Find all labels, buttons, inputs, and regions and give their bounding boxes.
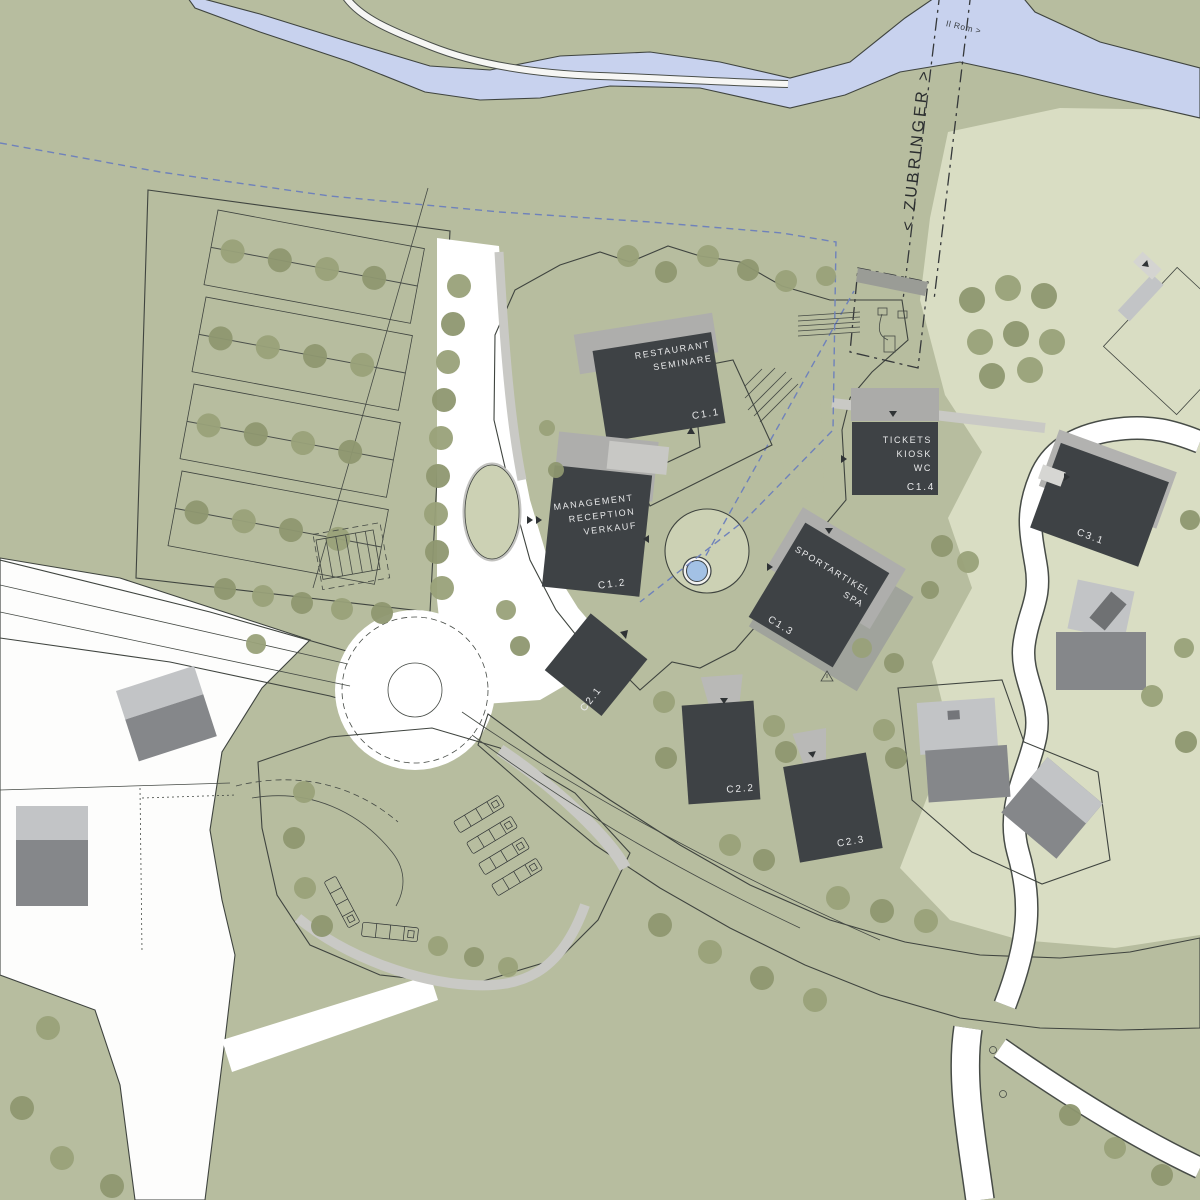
svg-text:KIOSK: KIOSK (896, 449, 932, 459)
tree (1175, 731, 1197, 753)
tree (331, 598, 353, 620)
tree (816, 266, 836, 286)
tree (737, 259, 759, 281)
tree (1003, 321, 1029, 347)
farm-house (16, 806, 88, 906)
tree (283, 827, 305, 849)
tree (653, 691, 675, 713)
tree (436, 350, 460, 374)
svg-text:C1.4: C1.4 (907, 482, 935, 493)
tree (995, 275, 1021, 301)
tree (655, 747, 677, 769)
tree (1031, 283, 1057, 309)
tree (1017, 357, 1043, 383)
tree (967, 329, 993, 355)
tree (293, 781, 315, 803)
tree (214, 578, 236, 600)
tree (979, 363, 1005, 389)
tree (548, 462, 564, 478)
tree (294, 877, 316, 899)
tree (959, 287, 985, 313)
tree (775, 270, 797, 292)
tree (775, 741, 797, 763)
tree (873, 719, 895, 741)
tree (697, 245, 719, 267)
tree (430, 576, 454, 600)
tree (870, 899, 894, 923)
tree (498, 957, 518, 977)
tree (921, 581, 939, 599)
tree (1151, 1164, 1173, 1186)
tree (1174, 638, 1194, 658)
tree (10, 1096, 34, 1120)
tree (464, 947, 484, 967)
tree (100, 1174, 124, 1198)
tree (931, 535, 953, 557)
svg-text:WC: WC (914, 463, 932, 473)
site-plan: < ZUBRINGER > Il Rom > RESTAURANT SEMINA… (0, 0, 1200, 1200)
tree (1141, 685, 1163, 707)
tree (428, 936, 448, 956)
svg-text:TICKETS: TICKETS (883, 435, 932, 445)
tree (698, 940, 722, 964)
tree (617, 245, 639, 267)
tree (424, 502, 448, 526)
tree (539, 420, 555, 436)
tree (441, 312, 465, 336)
tree (957, 551, 979, 573)
tree (648, 913, 672, 937)
svg-text:C2.2: C2.2 (726, 783, 755, 796)
tree (252, 585, 274, 607)
tree (496, 600, 516, 620)
tree (655, 261, 677, 283)
tree (852, 638, 872, 658)
tree (50, 1146, 74, 1170)
tree (311, 915, 333, 937)
tree (36, 1016, 60, 1040)
tree (914, 909, 938, 933)
tree (719, 834, 741, 856)
tree (425, 540, 449, 564)
tree (803, 988, 827, 1012)
roundabout (335, 610, 495, 770)
tree (510, 636, 530, 656)
tree (826, 886, 850, 910)
tree (884, 653, 904, 673)
tree (763, 715, 785, 737)
tree (291, 592, 313, 614)
tree (432, 388, 456, 412)
tree (429, 426, 453, 450)
tree (246, 634, 266, 654)
tree (1059, 1104, 1081, 1126)
tree (447, 274, 471, 298)
tree (1039, 329, 1065, 355)
tree (426, 464, 450, 488)
tree (750, 966, 774, 990)
tree (1180, 510, 1200, 530)
building-c1-4: TICKETS KIOSK WC C1.4 (841, 388, 939, 495)
tree (753, 849, 775, 871)
tree (371, 602, 393, 624)
tree (1104, 1137, 1126, 1159)
tree (885, 747, 907, 769)
